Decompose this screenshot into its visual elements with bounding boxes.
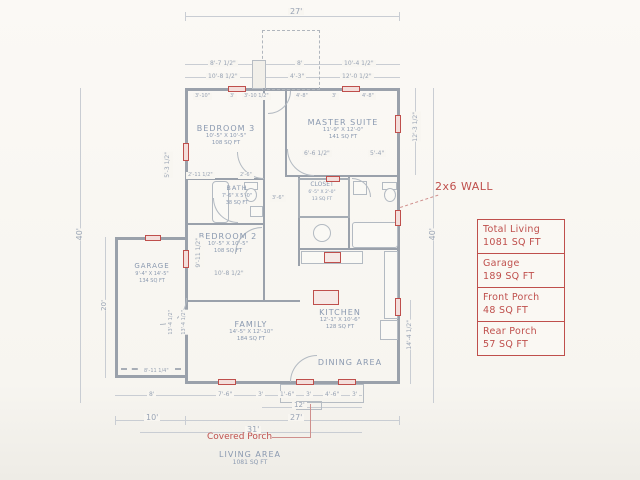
dim-hall-width: 3'-6" — [270, 195, 286, 202]
covered-porch-leader-v — [310, 404, 311, 438]
dim-top-row2-0: 8'-7 1/2" — [208, 60, 238, 67]
dim-left-overall: 40' — [74, 228, 85, 240]
rear-porch-outline — [262, 30, 320, 90]
kitchen-range-island — [313, 290, 339, 305]
legend-label: Total Living — [483, 223, 560, 236]
chimney — [252, 60, 266, 89]
dim-bottom-row1-5: 4'-6" — [323, 391, 341, 398]
dim-right-upper: 12'-3 1/2" — [410, 112, 421, 142]
wall-note-text: 2x6 WALL — [435, 180, 493, 193]
dim-right-lower: 14'-4 1/2" — [404, 320, 415, 350]
room-dims: 10'-5" X 10'-5" — [188, 133, 264, 140]
kitchen-fridge — [380, 320, 398, 340]
room-label-kitchen: KITCHEN 12'-1" X 10'-6" 128 SQ FT — [302, 308, 378, 331]
room-area: 108 SQ FT — [188, 140, 264, 147]
room-name: GARAGE — [119, 262, 185, 271]
dim-tick — [185, 12, 186, 21]
window-marker — [183, 250, 189, 268]
wall-bath-bed2 — [186, 223, 265, 225]
room-area: 141 SQ FT — [295, 134, 391, 141]
window-marker — [228, 86, 246, 92]
legend-value: 189 SQ FT — [483, 270, 560, 283]
dim-bottom-row1-4: 3' — [304, 391, 313, 398]
dim-tick — [185, 416, 186, 425]
room-dims: 7'-6" X 5'-0" — [214, 193, 260, 200]
legend-row-garage: Garage 189 SQ FT — [478, 254, 564, 288]
drawing-title-block: LIVING AREA 1081 SQ FT — [195, 450, 305, 467]
dim-bottom-row2: 12' — [292, 402, 307, 409]
dim-garage-inner-a: 13'-4 1/2" — [166, 310, 177, 335]
door-master-bath — [352, 178, 371, 197]
kitchen-sink — [324, 252, 341, 263]
dim-bed3-left-lower: 2'-11 1/2" — [186, 172, 215, 179]
wall-kitchen-top — [298, 248, 399, 250]
room-label-bath: BATH 7'-6" X 5'-0" 38 SQ FT — [214, 184, 260, 207]
dim-bed3-top-1: 3' — [228, 93, 237, 100]
dim-master-top-1: 3' — [330, 93, 339, 100]
dim-line-top-overall — [185, 16, 400, 17]
dim-tick — [399, 416, 400, 425]
area-legend: Total Living 1081 SQ FT Garage 189 SQ FT… — [477, 219, 565, 356]
garage-wall-bottom — [115, 375, 187, 378]
window-marker — [338, 379, 356, 385]
dim-bottom-row3-left: 10' — [144, 414, 160, 421]
room-area: 38 SQ FT — [214, 200, 260, 207]
room-label-master-suite: MASTER SUITE 11'-9" X 12'-0" 141 SQ FT — [295, 118, 391, 141]
dim-top-row3-0: 10'-8 1/2" — [206, 73, 240, 80]
room-name: FAMILY — [212, 320, 290, 329]
dim-master-bottom-right: 5'-4" — [368, 150, 386, 157]
room-area: 13 SQ FT — [299, 196, 345, 203]
room-label-garage: GARAGE 9'-4" X 14'-5" 134 SQ FT — [119, 262, 185, 285]
room-area: 184 SQ FT — [212, 336, 290, 343]
room-name: DINING AREA — [306, 358, 394, 367]
wall-kitchen-left-stub — [298, 248, 300, 266]
dim-bottom-row1-3: 1'-6" — [278, 391, 296, 398]
window-marker — [395, 210, 401, 226]
room-dims: 14'-5" X 12'-10" — [212, 329, 290, 336]
dim-bottom-row1-6: 3' — [350, 391, 359, 398]
room-label-closet: CLOSET 6'-5" X 2'-0" 13 SQ FT — [299, 180, 345, 203]
legend-value: 1081 SQ FT — [483, 236, 560, 249]
window-marker — [395, 115, 401, 133]
room-area: 128 SQ FT — [302, 324, 378, 331]
room-dims: 6'-5" X 2'-0" — [299, 189, 345, 196]
dim-bed3-top-2: 3'-10 1/2" — [242, 93, 271, 100]
dim-tick — [115, 416, 116, 425]
dim-tick — [399, 12, 400, 21]
legend-label: Rear Porch — [483, 325, 560, 338]
dim-bottom-row3-right: 27' — [288, 414, 304, 421]
window-marker — [395, 298, 401, 316]
dim-right-overall: 40' — [427, 228, 438, 240]
dim-top-row3-1: 4'-3" — [288, 73, 306, 80]
room-name: BEDROOM 3 — [188, 124, 264, 133]
legend-row-front-porch: Front Porch 48 SQ FT — [478, 288, 564, 322]
dim-master-bottom-left: 6'-6 1/2" — [302, 150, 332, 157]
dim-bottom-row1-0: 8' — [147, 391, 156, 398]
wall-master-bottom — [285, 175, 399, 177]
mbath-tub — [352, 222, 398, 248]
room-area: 134 SQ FT — [119, 278, 185, 285]
covered-porch-text: Covered Porch — [207, 432, 272, 442]
window-marker — [342, 86, 360, 92]
garage-wall-left — [115, 237, 118, 378]
dim-master-top-2: 4'-8" — [360, 93, 376, 100]
legend-label: Garage — [483, 257, 560, 270]
dim-garage-inner-b: 13'-4 1/2" — [179, 310, 190, 335]
dim-top-row2-2: 10'-4 1/2" — [342, 60, 376, 67]
living-area-title: LIVING AREA — [195, 450, 305, 459]
dim-line-left-40 — [80, 88, 81, 403]
room-label-family: FAMILY 14'-5" X 12'-10" 184 SQ FT — [212, 320, 290, 343]
room-dims: 12'-1" X 10'-6" — [302, 317, 378, 324]
dim-top-overall: 27' — [288, 8, 304, 15]
room-name: BATH — [214, 184, 260, 193]
dim-left-upper: 5'-3 1/2" — [162, 152, 173, 178]
window-marker — [296, 379, 314, 385]
dim-garage-bottom: 8'-11 1/4" — [142, 368, 171, 375]
room-label-dining: DINING AREA — [306, 358, 394, 367]
room-dims: 9'-4" X 14'-5" — [119, 271, 185, 278]
dim-line-right-40 — [433, 88, 434, 403]
dim-bedroom2-left: 9'-11 1/2" — [193, 238, 204, 268]
dim-left-garage: 20' — [99, 300, 110, 311]
dim-top-row2-1: 8' — [295, 60, 304, 67]
covered-porch-leader-h — [272, 437, 310, 438]
legend-row-rear-porch: Rear Porch 57 SQ FT — [478, 322, 564, 355]
dim-master-top-0: 4'-8" — [294, 93, 310, 100]
dim-top-row3-2: 12'-0 1/2" — [340, 73, 374, 80]
window-marker — [326, 176, 340, 182]
living-area-value: 1081 SQ FT — [195, 459, 305, 467]
water-heater — [313, 224, 331, 242]
window-marker — [183, 143, 189, 161]
door-rear — [268, 91, 291, 114]
wall-bed2-family — [186, 300, 300, 302]
dim-bath-top: 2'-6" — [238, 172, 254, 179]
floor-plan-page: BEDROOM 3 10'-5" X 10'-5" 108 SQ FT MAST… — [0, 0, 640, 480]
legend-value: 48 SQ FT — [483, 304, 560, 317]
legend-value: 57 SQ FT — [483, 338, 560, 351]
window-marker — [145, 235, 161, 241]
legend-label: Front Porch — [483, 291, 560, 304]
dim-bedroom2-bottom: 10'-8 1/2" — [212, 270, 246, 277]
legend-row-total-living: Total Living 1081 SQ FT — [478, 220, 564, 254]
mbath-toilet-bowl — [384, 188, 396, 202]
room-dims: 11'-9" X 12'-0" — [295, 127, 391, 134]
dim-bottom-row1-1: 7'-6" — [216, 391, 234, 398]
window-marker — [218, 379, 236, 385]
room-name: KITCHEN — [302, 308, 378, 317]
bath-sink — [250, 206, 263, 217]
dim-bed3-top-0: 3'-10" — [193, 93, 212, 100]
room-label-bedroom3: BEDROOM 3 10'-5" X 10'-5" 108 SQ FT — [188, 124, 264, 147]
room-name: MASTER SUITE — [295, 118, 391, 127]
dim-bottom-row1-2: 3' — [256, 391, 265, 398]
